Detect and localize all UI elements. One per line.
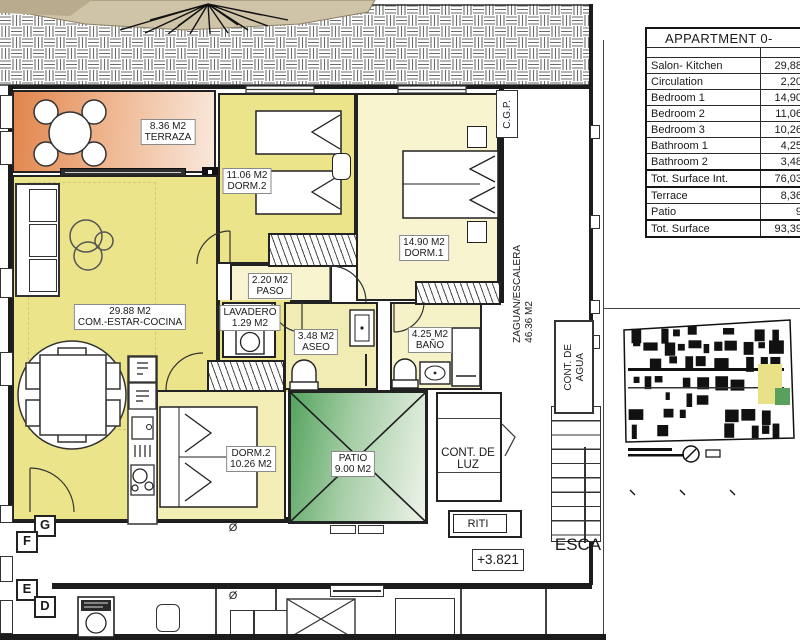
riti-name: RITI xyxy=(468,518,489,530)
room-name-cell: Circulation xyxy=(646,74,760,90)
wardrobe-bar xyxy=(330,585,384,597)
diameter-glyph: Ø xyxy=(229,522,238,534)
area-table-total-row: Tot. Surface93,39 xyxy=(646,220,800,237)
zaguan-name: ZAGUAN/ESCALERA xyxy=(512,245,523,343)
frame-line-right xyxy=(603,40,604,640)
sofa xyxy=(15,183,60,297)
plant xyxy=(60,208,124,274)
label-esca: ESCA xyxy=(555,539,601,551)
bed-single-1 xyxy=(255,110,342,155)
key-plan-block xyxy=(723,328,734,335)
room-name-cell: Tot. Surface Int. xyxy=(646,170,760,187)
key-plan-block xyxy=(643,342,657,350)
room-name-cell: Terrace xyxy=(646,187,760,204)
dorm1-area: 14.90 M2 xyxy=(403,237,445,248)
area-table-row: Patio9 xyxy=(646,204,800,221)
label-dorm1: 14.90 M2 DORM.1 xyxy=(399,235,449,261)
level-value: +3.821 xyxy=(477,552,519,567)
label-paso: 2.20 M2 PASO xyxy=(248,273,292,299)
key-plan-block xyxy=(744,342,754,355)
area-table-title: APPARTMENT 0- xyxy=(646,28,800,48)
wardrobe-hall xyxy=(207,360,285,392)
label-terraza: 8.36 M2 TERRAZA xyxy=(141,119,196,145)
grid-label-f: F xyxy=(16,531,38,553)
aseo-name: ASEO xyxy=(302,342,330,353)
staircase xyxy=(551,406,601,542)
room-area-cell: 93,39 xyxy=(760,220,800,237)
key-plan-block xyxy=(655,376,663,382)
diameter-symbol: Ø xyxy=(229,522,238,534)
dimension-ticks xyxy=(618,488,798,498)
area-table-row: Salon- Kitchen29,88 xyxy=(646,58,800,74)
key-plan-block xyxy=(758,342,765,348)
room-area-cell: 11,06 xyxy=(760,106,800,122)
room-name-cell: Salon- Kitchen xyxy=(646,58,760,74)
key-plan-block xyxy=(657,425,668,436)
dorm3-area: 10.26 M2 xyxy=(230,459,272,470)
wall-lower-unit-top xyxy=(52,583,592,589)
patio-vent xyxy=(330,525,356,534)
left-edge-fragment xyxy=(0,505,13,523)
key-plan-block xyxy=(688,326,697,335)
terrace-table-set xyxy=(20,95,120,171)
grid-letter: F xyxy=(23,533,31,548)
key-plan-block xyxy=(632,425,637,439)
zaguan-area: 46.36 M2 xyxy=(524,245,535,343)
key-plan-block xyxy=(650,359,661,369)
area-table-row: Bedroom 211,06 xyxy=(646,106,800,122)
wardrobe-dorm1 xyxy=(415,281,501,305)
dining-table-set xyxy=(14,338,132,454)
key-plan-block xyxy=(687,393,693,407)
palm-tree xyxy=(0,0,390,34)
salon-name: COM.-ESTAR-COCINA xyxy=(78,317,182,328)
cont-luz-line1: CONT. DE xyxy=(441,447,495,459)
key-plan-block xyxy=(769,340,784,353)
key-plan-block xyxy=(762,425,769,434)
paso-name: PASO xyxy=(256,286,283,297)
grid-letter: E xyxy=(23,581,32,596)
nightstand xyxy=(332,153,351,180)
key-plan-block xyxy=(688,340,701,348)
room-name-cell: Bathroom 2 xyxy=(646,154,760,171)
spacer-cell xyxy=(646,48,760,58)
bed-double-dorm1 xyxy=(402,150,499,219)
key-plan-block xyxy=(731,380,745,391)
label-cont-agua: CONT. DE AGUA xyxy=(554,320,594,414)
label-lavadero: LAVADERO 1.29 M2 xyxy=(220,305,281,331)
label-zaguan: ZAGUAN/ESCALERA 46.36 M2 xyxy=(512,245,535,343)
diameter-glyph: Ø xyxy=(229,590,238,602)
lavadero-name: LAVADERO xyxy=(224,307,277,318)
area-table: APPARTMENT 0- Salon- Kitchen29,88Circula… xyxy=(645,27,800,238)
paso-area: 2.20 M2 xyxy=(252,275,288,286)
label-dorm3: DORM.2 10.26 M2 xyxy=(226,446,276,472)
key-plan-block xyxy=(752,426,759,439)
floor-plan-sheet: 8.36 M2 TERRAZA 29.88 M2 COM.-ESTAR-COCI… xyxy=(0,0,800,640)
frame-line-horizontal xyxy=(604,308,800,309)
aseo-area: 3.48 M2 xyxy=(298,331,334,342)
lavadero-area: 1.29 M2 xyxy=(232,318,268,329)
key-plan-block xyxy=(697,395,709,404)
lower-partition xyxy=(545,589,547,640)
cgp-text: C.G.P. xyxy=(502,100,513,129)
key-plan-block xyxy=(685,356,693,368)
wall-tick xyxy=(590,300,600,314)
label-patio: PATIO 9.00 M2 xyxy=(331,451,375,477)
room-name-cell: Bedroom 2 xyxy=(646,106,760,122)
label-dorm2: 11.06 M2 DORM.2 xyxy=(223,168,272,194)
area-table-row: Terrace8,36 xyxy=(646,187,800,204)
spacer-cell xyxy=(760,48,800,58)
key-plan-block xyxy=(755,329,765,341)
cont-agua-line2: AGUA xyxy=(575,353,586,381)
salon-area: 29.88 M2 xyxy=(109,306,151,317)
diameter-symbol: Ø xyxy=(229,590,238,602)
patio-area: 9.00 M2 xyxy=(335,464,371,475)
label-riti: RITI xyxy=(468,518,489,530)
bano-area: 4.25 M2 xyxy=(412,329,448,340)
area-table-row: Bedroom 114,90 xyxy=(646,90,800,106)
left-edge-fragment xyxy=(0,352,13,386)
label-aseo: 3.48 M2 ASEO xyxy=(294,329,338,355)
key-plan-block xyxy=(673,329,680,336)
terraza-area: 8.36 M2 xyxy=(150,121,186,132)
room-area-cell: 29,88 xyxy=(760,58,800,74)
grid-label-d: D xyxy=(34,596,56,618)
key-plan-block xyxy=(775,388,790,405)
label-cont-luz: CONT. DE LUZ xyxy=(441,447,495,471)
area-table-title-row: APPARTMENT 0- xyxy=(646,28,800,48)
key-plan-block xyxy=(634,377,640,383)
key-plan-block xyxy=(724,423,734,437)
room-name-cell: Bedroom 1 xyxy=(646,90,760,106)
grid-letter: G xyxy=(40,517,50,532)
key-plan-block xyxy=(741,409,755,421)
key-plan-block xyxy=(725,341,737,351)
room-name-cell: Bedroom 3 xyxy=(646,122,760,138)
key-plan-block xyxy=(633,340,640,346)
key-plan-block xyxy=(704,344,710,353)
label-cgp: C.G.P. xyxy=(496,90,518,138)
key-plan-block xyxy=(725,410,739,423)
cont-agua-line1: CONT. DE xyxy=(563,344,574,391)
cont-luz-line2: LUZ xyxy=(457,459,479,471)
nightstand xyxy=(467,221,487,243)
wall-tick xyxy=(590,125,600,139)
key-plan-block xyxy=(714,358,728,369)
dorm2-area: 11.06 M2 xyxy=(227,170,268,181)
wall-top xyxy=(8,85,592,89)
key-plan-block xyxy=(664,409,674,418)
key-plan-block xyxy=(696,356,706,366)
key-plan-block xyxy=(773,424,780,439)
room-area-cell: 3,48 xyxy=(760,154,800,171)
area-table-body: APPARTMENT 0- Salon- Kitchen29,88Circula… xyxy=(646,28,800,237)
key-plan-block xyxy=(661,329,668,344)
wardrobe-dorm2 xyxy=(268,233,358,267)
room-area-cell: 4,25 xyxy=(760,138,800,154)
key-plan-block xyxy=(678,344,685,351)
area-table-spacer-row xyxy=(646,48,800,58)
area-table-row: Bedroom 310,26 xyxy=(646,122,800,138)
key-plan-caption xyxy=(618,442,798,472)
wall-tick xyxy=(590,215,600,229)
area-table-row: Bathroom 14,25 xyxy=(646,138,800,154)
esca-text: ESCA xyxy=(555,535,601,554)
room-name-cell: Bathroom 1 xyxy=(646,138,760,154)
patio-name: PATIO xyxy=(339,453,368,464)
dorm2-name: DORM.2 xyxy=(228,181,267,192)
key-plan-block xyxy=(680,410,686,418)
lower-partition xyxy=(215,589,217,640)
kitchen-counter xyxy=(127,355,158,525)
grid-letter: D xyxy=(40,598,49,613)
level-marker: +3.821 xyxy=(472,549,524,571)
cont-luz-shelf xyxy=(438,418,500,419)
bano-name: BAÑO xyxy=(416,340,444,351)
dorm3-name: DORM.2 xyxy=(232,448,271,459)
left-edge-fragment xyxy=(0,95,13,129)
area-table-row: Bathroom 23,48 xyxy=(646,154,800,171)
key-plan-block xyxy=(669,356,677,363)
room-name-cell: Tot. Surface xyxy=(646,220,760,237)
key-plan-block xyxy=(666,392,670,400)
patio-vent xyxy=(358,525,384,534)
left-edge-fragment xyxy=(0,556,13,582)
key-plan-block xyxy=(762,410,771,425)
dorm1-name: DORM.1 xyxy=(405,248,444,259)
room-area-cell: 9 xyxy=(760,204,800,221)
key-plan-block xyxy=(629,409,644,420)
cont-luz-shelf xyxy=(438,472,500,473)
room-area-cell: 76,03 xyxy=(760,170,800,187)
terraza-name: TERRAZA xyxy=(145,132,192,143)
room-area-cell: 10,26 xyxy=(760,122,800,138)
room-name-cell: Patio xyxy=(646,204,760,221)
area-table-total-row: Tot. Surface Int.76,03 xyxy=(646,170,800,187)
key-plan-block xyxy=(714,342,722,351)
left-edge-fragment xyxy=(0,268,13,298)
washing-machine-icon xyxy=(76,595,116,639)
area-table-row: Circulation2,20 xyxy=(646,74,800,90)
label-bano: 4.25 M2 BAÑO xyxy=(408,327,452,353)
label-salon: 29.88 M2 COM.-ESTAR-COCINA xyxy=(74,304,186,330)
left-edge-fragment xyxy=(0,600,13,634)
key-plan-block xyxy=(665,342,675,355)
room-area-cell: 2,20 xyxy=(760,74,800,90)
room-area-cell: 14,90 xyxy=(760,90,800,106)
lower-partition xyxy=(460,589,462,640)
room-area-cell: 8,36 xyxy=(760,187,800,204)
fixture xyxy=(156,604,180,632)
left-edge-fragment xyxy=(0,131,13,165)
key-plan-block xyxy=(683,378,690,387)
nightstand xyxy=(467,126,487,148)
